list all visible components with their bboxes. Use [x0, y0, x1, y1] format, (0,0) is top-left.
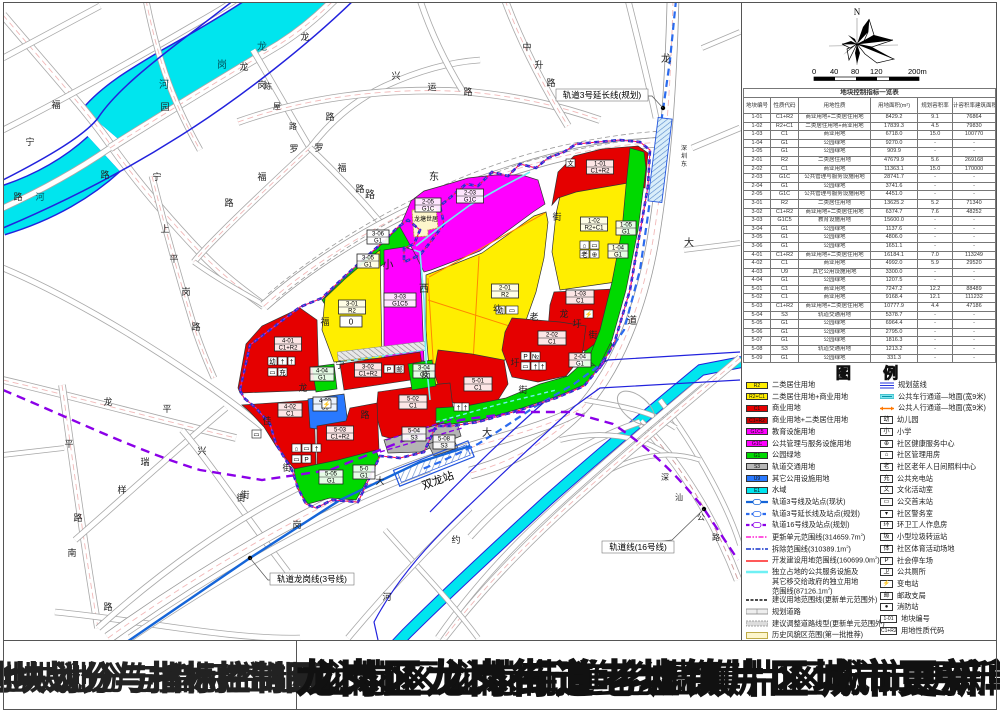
svg-text:⚡: ⚡	[322, 401, 330, 409]
svg-text:运: 运	[427, 82, 436, 92]
svg-text:S3: S3	[410, 436, 418, 442]
svg-text:†: †	[315, 446, 319, 453]
svg-text:▭: ▭	[509, 308, 515, 315]
svg-text:深: 深	[661, 473, 669, 482]
svg-text:轨道3号延长线(规划): 轨道3号延长线(规划)	[563, 90, 642, 100]
svg-text:路: 路	[100, 169, 109, 180]
svg-text:†: †	[457, 405, 461, 412]
svg-text:2-03: 2-03	[464, 191, 477, 197]
svg-text:龙: 龙	[257, 40, 267, 53]
svg-text:2-01: 2-01	[499, 286, 512, 292]
svg-text:▭: ▭	[253, 432, 259, 439]
svg-text:路: 路	[463, 86, 472, 97]
svg-text:5-02: 5-02	[407, 397, 420, 403]
svg-text:岗: 岗	[421, 370, 430, 380]
svg-text:1-01: 1-01	[594, 162, 607, 168]
svg-text:兴: 兴	[197, 446, 206, 456]
svg-text:街: 街	[588, 329, 597, 340]
svg-text:G1: G1	[364, 263, 373, 269]
svg-text:道: 道	[627, 314, 637, 327]
svg-text:C1: C1	[409, 404, 417, 410]
svg-text:龙塘世居: 龙塘世居	[414, 215, 438, 223]
svg-text:龙: 龙	[298, 382, 307, 393]
svg-text:3-05: 3-05	[362, 256, 375, 262]
svg-text:龙: 龙	[661, 52, 671, 65]
svg-text:大: 大	[482, 426, 492, 439]
svg-text:G1: G1	[318, 376, 327, 382]
svg-text:河: 河	[382, 591, 391, 602]
svg-text:C1: C1	[474, 386, 482, 392]
svg-text:幼: 幼	[493, 303, 501, 313]
svg-text:▭: ▭	[293, 457, 299, 464]
svg-text:街: 街	[282, 462, 291, 473]
svg-text:⊕: ⊕	[592, 252, 598, 259]
svg-text:路: 路	[712, 532, 720, 542]
svg-text:C1: C1	[286, 412, 294, 418]
svg-text:N: N	[854, 7, 861, 17]
svg-text:1-05: 1-05	[620, 223, 633, 229]
svg-text:龙: 龙	[239, 61, 248, 72]
svg-text:1-02: 1-02	[588, 219, 601, 225]
svg-text:†: †	[541, 364, 545, 371]
svg-text:R2: R2	[348, 309, 356, 315]
svg-text:邮: 邮	[396, 365, 403, 374]
svg-text:▭: ▭	[303, 446, 309, 453]
svg-text:园: 园	[160, 102, 169, 112]
svg-text:1-04: 1-04	[612, 246, 625, 252]
svg-text:R2: R2	[501, 293, 509, 299]
svg-text:轨道龙岗线(3号线): 轨道龙岗线(3号线)	[277, 574, 347, 584]
svg-text:罗: 罗	[314, 143, 323, 153]
svg-text:4-01: 4-01	[282, 339, 295, 345]
svg-text:80: 80	[851, 67, 859, 76]
svg-text:幼: 幼	[269, 357, 276, 366]
svg-text:深: 深	[681, 144, 687, 152]
svg-text:1-03: 1-03	[574, 292, 587, 298]
svg-text:G1: G1	[374, 239, 383, 245]
svg-text:大: 大	[375, 475, 384, 486]
svg-text:G1: G1	[360, 474, 369, 480]
svg-text:4-02: 4-02	[284, 405, 297, 411]
svg-text:宁: 宁	[25, 136, 34, 147]
svg-text:老: 老	[529, 311, 538, 322]
svg-text:公: 公	[697, 513, 705, 522]
svg-text:P: P	[304, 457, 308, 464]
svg-text:路: 路	[191, 321, 200, 332]
svg-text:⌂: ⌂	[295, 446, 299, 453]
svg-text:†: †	[534, 364, 538, 371]
svg-text:0: 0	[812, 67, 816, 76]
svg-text:瑞: 瑞	[140, 456, 149, 467]
svg-text:†: †	[464, 405, 468, 412]
svg-text:汕: 汕	[675, 492, 683, 502]
svg-text:C1+R2: C1+R2	[279, 346, 299, 352]
svg-text:路: 路	[355, 183, 364, 194]
svg-text:南: 南	[67, 547, 76, 558]
svg-text:⚡: ⚡	[584, 311, 592, 319]
svg-text:2-05: 2-05	[422, 200, 435, 206]
svg-text:宁: 宁	[335, 359, 344, 370]
svg-text:岗: 岗	[217, 59, 227, 71]
svg-text:5-04: 5-04	[408, 429, 421, 435]
svg-text:G1C: G1C	[422, 207, 435, 213]
svg-text:S3: S3	[440, 444, 448, 450]
svg-text:圩: 圩	[510, 357, 519, 368]
svg-text:岗: 岗	[181, 287, 190, 297]
svg-text:路: 路	[289, 121, 297, 131]
svg-text:3-03: 3-03	[394, 295, 407, 301]
svg-text:平: 平	[169, 254, 178, 264]
svg-text:5-05: 5-05	[325, 472, 338, 478]
svg-text:路: 路	[546, 77, 555, 88]
svg-text:⌂: ⌂	[583, 243, 587, 250]
svg-text:▭: ▭	[522, 364, 528, 371]
svg-text:福: 福	[320, 316, 329, 327]
svg-text:3-02: 3-02	[362, 365, 375, 371]
svg-text:C1+R2: C1+R2	[331, 435, 351, 441]
svg-text:罗: 罗	[289, 144, 298, 154]
svg-text:河: 河	[35, 191, 44, 202]
svg-text:轨道线(16号线): 轨道线(16号线)	[609, 542, 667, 552]
svg-text:5-0: 5-0	[360, 467, 369, 473]
svg-text:G1: G1	[576, 362, 585, 368]
svg-text:文: 文	[567, 159, 574, 168]
svg-text:C1+R2: C1+R2	[591, 169, 611, 175]
svg-text:G1C: G1C	[464, 198, 477, 204]
svg-text:▭: ▭	[269, 370, 275, 377]
svg-text:路: 路	[103, 601, 112, 612]
svg-text:路: 路	[224, 197, 233, 208]
svg-text:福: 福	[51, 99, 60, 110]
svg-text:C1: C1	[548, 340, 556, 346]
svg-text:平: 平	[64, 439, 73, 449]
svg-text:G1: G1	[327, 479, 336, 485]
svg-text:佳: 佳	[262, 415, 271, 426]
svg-text:龙: 龙	[559, 308, 568, 319]
svg-text:路: 路	[325, 111, 334, 122]
svg-text:福: 福	[337, 162, 346, 173]
svg-text:河: 河	[159, 79, 169, 91]
svg-text:C1+R2: C1+R2	[359, 372, 379, 378]
svg-text:宁: 宁	[152, 171, 161, 182]
svg-text:平: 平	[162, 404, 171, 414]
svg-text:†: †	[290, 359, 294, 366]
svg-text:路: 路	[13, 191, 22, 202]
svg-text:G1C5: G1C5	[392, 302, 408, 308]
svg-text:4-04: 4-04	[316, 369, 329, 375]
svg-text:3-01: 3-01	[346, 302, 359, 308]
svg-text:P: P	[523, 354, 527, 361]
svg-text:样: 样	[117, 484, 126, 495]
svg-text:街: 街	[552, 211, 561, 222]
svg-text:岗: 岗	[257, 80, 266, 90]
svg-text:120: 120	[870, 67, 883, 76]
svg-text:屋: 屋	[273, 102, 281, 111]
svg-text:2-04: 2-04	[574, 355, 587, 361]
svg-text:街: 街	[518, 384, 527, 395]
svg-text:福: 福	[257, 171, 266, 182]
svg-text:西: 西	[419, 284, 429, 295]
svg-text:G1: G1	[622, 230, 631, 236]
svg-text:大: 大	[684, 236, 694, 249]
svg-text:小: 小	[383, 258, 394, 271]
svg-text:路: 路	[365, 188, 375, 201]
svg-text:3-06: 3-06	[372, 232, 385, 238]
svg-text:龙: 龙	[300, 31, 309, 42]
svg-text:路: 路	[360, 409, 369, 420]
svg-text:R2+C1: R2+C1	[585, 226, 605, 232]
svg-text:上: 上	[160, 224, 169, 234]
svg-text:充: 充	[279, 368, 286, 377]
svg-text:岗: 岗	[292, 520, 301, 530]
svg-text:圳: 圳	[681, 152, 687, 160]
svg-text:5-01: 5-01	[472, 379, 485, 385]
svg-text:路: 路	[73, 512, 82, 523]
svg-text:2-02: 2-02	[546, 333, 559, 339]
svg-text:街: 街	[236, 492, 245, 503]
svg-text:约: 约	[451, 534, 460, 545]
svg-text:P: P	[387, 367, 391, 374]
svg-text:东: 东	[681, 160, 687, 168]
svg-text:†: †	[281, 359, 285, 366]
svg-text:0: 0	[349, 318, 354, 327]
svg-text:圩: 圩	[572, 318, 581, 329]
svg-text:中: 中	[522, 41, 531, 52]
svg-text:200m: 200m	[908, 67, 927, 76]
svg-text:升: 升	[534, 60, 543, 70]
svg-text:5-08: 5-08	[438, 437, 451, 443]
svg-text:C1: C1	[576, 299, 584, 305]
svg-text:№: №	[532, 354, 539, 361]
svg-text:龙: 龙	[103, 396, 112, 407]
svg-text:▭: ▭	[591, 243, 597, 250]
svg-text:老: 老	[581, 250, 588, 259]
svg-text:5-03: 5-03	[334, 428, 347, 434]
svg-text:40: 40	[830, 67, 838, 76]
svg-text:G1: G1	[614, 253, 623, 259]
svg-text:东: 东	[429, 170, 439, 183]
svg-text:兴: 兴	[391, 71, 400, 81]
